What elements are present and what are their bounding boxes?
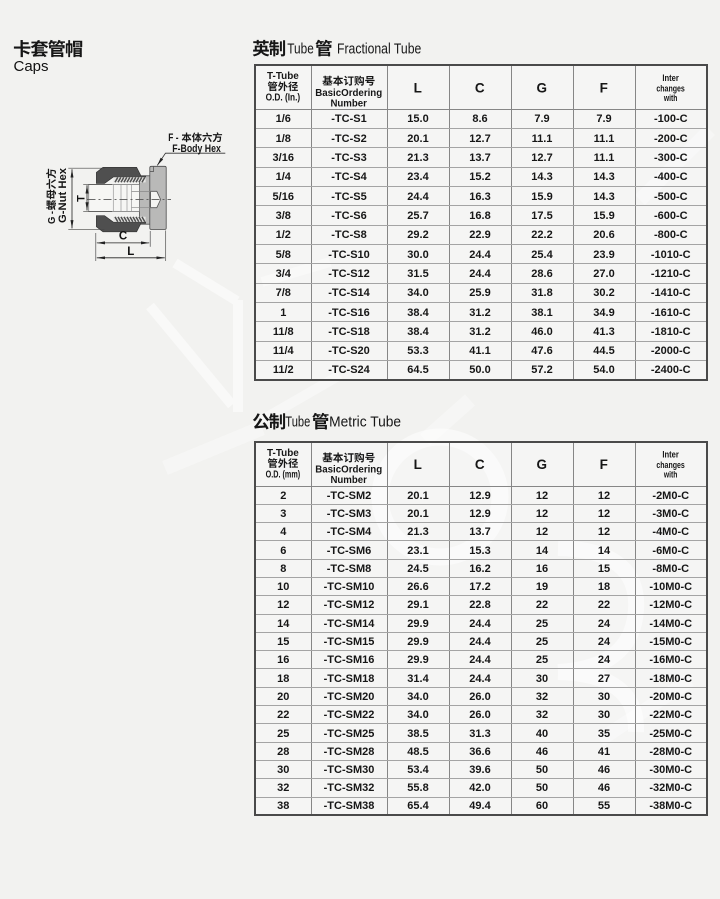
svg-text:BasicOrdering: BasicOrdering	[315, 88, 382, 99]
svg-text:F: F	[600, 80, 608, 95]
svg-text:with: with	[663, 93, 677, 103]
svg-text:L: L	[414, 80, 422, 95]
svg-text:BasicOrdering: BasicOrdering	[315, 465, 382, 476]
svg-text:T-Tube: T-Tube	[267, 448, 299, 459]
svg-text:O.D. (In.): O.D. (In.)	[266, 93, 301, 104]
svg-text:O.D. (mm): O.D. (mm)	[266, 469, 301, 480]
svg-text:Metric Tube: Metric Tube	[329, 415, 401, 431]
svg-text:F: F	[600, 457, 608, 472]
svg-text:Inter: Inter	[662, 450, 679, 460]
svg-text:G-Nut Hex: G-Nut Hex	[57, 167, 69, 223]
svg-text:Fractional Tube: Fractional Tube	[337, 41, 421, 57]
svg-text:C: C	[475, 80, 485, 95]
svg-text:Number: Number	[330, 475, 367, 486]
svg-text:T-Tube: T-Tube	[267, 71, 299, 82]
svg-text:changes: changes	[656, 83, 685, 93]
svg-text:Inter: Inter	[662, 73, 679, 83]
svg-text:Number: Number	[330, 98, 367, 109]
svg-text:G: G	[537, 80, 548, 95]
svg-text:L: L	[414, 457, 422, 472]
svg-text:changes: changes	[656, 460, 685, 470]
svg-text:F-Body Hex: F-Body Hex	[172, 143, 221, 155]
svg-text:Tube: Tube	[287, 41, 314, 57]
svg-text:G: G	[537, 457, 548, 472]
svg-text:C: C	[475, 457, 485, 472]
svg-text:Tube: Tube	[285, 415, 310, 431]
svg-text:with: with	[663, 470, 677, 480]
